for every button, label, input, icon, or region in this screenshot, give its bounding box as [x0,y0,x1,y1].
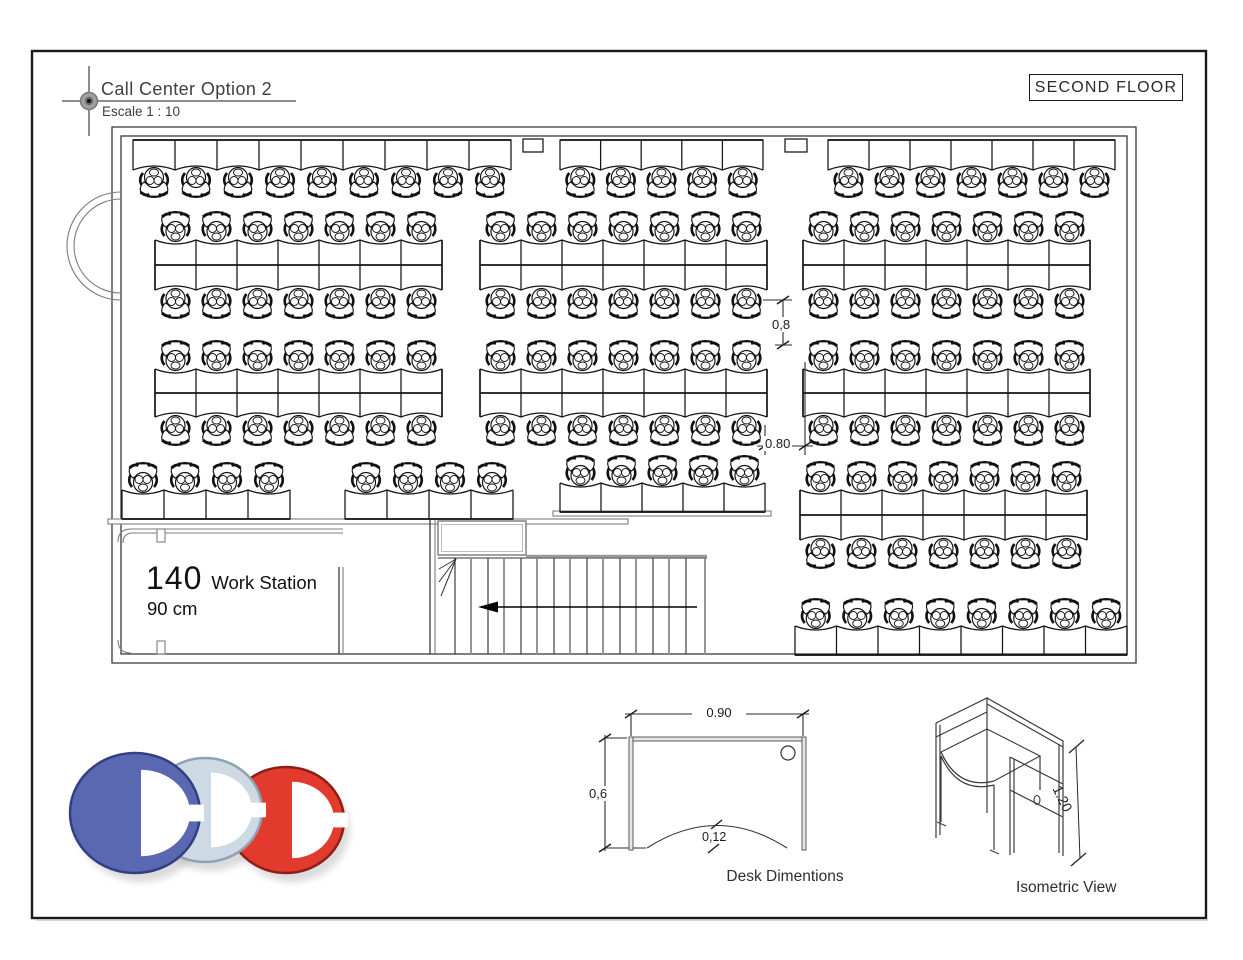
office-chair [807,539,835,569]
office-chair [733,212,761,242]
office-chair [974,416,1002,446]
desk-right-edge [802,737,806,850]
office-chair [1053,462,1081,492]
office-chair [528,212,556,242]
office-chair [203,341,231,371]
office-chair [731,456,759,486]
desk-group-row2-middle [480,212,767,319]
office-chair [1056,416,1084,446]
office-chair [892,341,920,371]
office-chair [1015,416,1043,446]
office-chair [651,416,679,446]
office-chair [733,341,761,371]
column [523,139,543,152]
desk-notch-dimension: 0,12 [700,830,728,844]
office-chair [971,462,999,492]
office-chair [851,416,879,446]
office-chair [690,456,718,486]
office-chair [394,463,422,493]
desk-group-row2-right [803,212,1090,319]
cdc-logo [70,753,350,882]
office-chair [1053,539,1081,569]
office-chair [567,168,595,198]
office-chair [930,539,958,569]
office-chair [889,539,917,569]
office-chair [974,341,1002,371]
office-chair [651,289,679,319]
desk-group-bottom-right-island [800,462,1087,569]
office-chair [408,289,436,319]
office-chair [851,289,879,319]
office-chair [802,599,830,629]
office-chair [807,462,835,492]
office-chair [692,341,720,371]
desk-group-row3-middle [480,341,767,446]
office-chair [729,168,757,198]
office-chair [487,341,515,371]
office-chair [933,289,961,319]
office-chair [408,416,436,446]
titleblock-crosshair-icon [62,66,296,136]
desk-left-edge [629,737,633,850]
desk-group-row3-left [155,341,442,446]
drawing-scale: Escale 1 : 10 [102,104,180,119]
dimension-aisle-vertical: 0,8 [770,317,792,332]
office-chair [367,341,395,371]
office-chair [171,463,199,493]
desk-group-row4-middle [345,463,513,520]
office-chair [487,289,515,319]
iso-caption: Isometric View [1016,879,1117,897]
office-chair [1012,462,1040,492]
office-chair [244,416,272,446]
office-chair [182,168,210,198]
office-chair [810,289,838,319]
office-chair [285,212,313,242]
office-chair [651,341,679,371]
office-chair [162,212,190,242]
office-chair [350,168,378,198]
office-chair [835,168,863,198]
office-chair [692,416,720,446]
drawing-title: Call Center Option 2 [101,79,272,100]
wall-stub [157,529,165,542]
stair-landing [438,521,526,555]
office-chair [224,168,252,198]
office-chair [958,168,986,198]
office-chair [885,599,913,629]
office-chair [203,212,231,242]
office-chair [1040,168,1068,198]
desk-back-edge [629,737,806,741]
office-chair [266,168,294,198]
office-chair [569,416,597,446]
office-chair [326,341,354,371]
office-chair [892,416,920,446]
office-chair [1081,168,1109,198]
office-chair [326,289,354,319]
floor-label: SECOND FLOOR [1029,74,1183,101]
office-chair [487,416,515,446]
office-chair [408,341,436,371]
office-chair [392,168,420,198]
office-chair [1056,212,1084,242]
office-chair [213,463,241,493]
office-chair [367,416,395,446]
grommet-hole [781,746,795,760]
desk-group-top-wall-left [133,140,511,198]
office-chair [649,456,677,486]
office-chair [1015,212,1043,242]
office-chair [528,341,556,371]
wall-stub [157,641,165,654]
desk-diagram-caption: Desk Dimentions [690,868,880,886]
desk-group-top-wall-middle [560,140,763,198]
office-chair [933,416,961,446]
column [785,139,807,152]
dimension-aisle-horizontal: 0.80 [763,436,792,451]
workstation-count: 140 [146,560,202,597]
office-chair [528,289,556,319]
office-chair [285,289,313,319]
office-chair [1012,539,1040,569]
office-chair [933,212,961,242]
office-chair [974,212,1002,242]
office-chair [610,289,638,319]
desk-group-row2-left [155,212,442,319]
office-chair [1056,341,1084,371]
office-chair [892,289,920,319]
office-chair [487,212,515,242]
office-chair [244,289,272,319]
stairs [430,520,707,654]
office-chair [848,462,876,492]
office-chair [688,168,716,198]
office-chair [1056,289,1084,319]
desk-depth-dimension: 0,6 [587,786,609,801]
office-chair [436,463,464,493]
office-chair [162,289,190,319]
office-chair [810,416,838,446]
office-chair [851,212,879,242]
office-chair [692,289,720,319]
office-chair [610,212,638,242]
office-chair [367,289,395,319]
office-chair [917,168,945,198]
stair-winders [439,559,456,596]
office-chair [733,416,761,446]
office-chair [326,416,354,446]
office-chair [528,416,556,446]
office-chair [876,168,904,198]
office-chair [848,539,876,569]
office-chair [889,462,917,492]
office-chair [478,463,506,493]
office-chair [408,212,436,242]
office-chair [843,599,871,629]
office-chair [285,341,313,371]
office-chair [610,416,638,446]
workstation-summary: 140 Work Station [146,560,317,597]
workstation-label: Work Station [211,572,317,594]
desk-group-top-wall-right [828,140,1115,198]
desk-group-row3-right [803,341,1090,446]
office-chair [1015,341,1043,371]
office-chair [244,341,272,371]
office-chair [933,341,961,371]
office-chair [569,341,597,371]
office-chair [892,212,920,242]
office-chair [476,168,504,198]
office-chair [608,456,636,486]
office-chair [974,289,1002,319]
office-chair [610,341,638,371]
desk-group-row4-right [560,456,765,513]
office-chair [810,341,838,371]
office-chair [971,539,999,569]
office-chair [162,416,190,446]
office-chair [162,341,190,371]
office-chair [1015,289,1043,319]
desk-width-dimension: 0.90 [692,705,746,720]
office-chair [434,168,462,198]
office-chair [692,212,720,242]
office-chair [567,456,595,486]
office-chair [285,416,313,446]
desk-group-bottom-wall [795,599,1127,656]
office-chair [651,212,679,242]
office-chair [569,212,597,242]
office-chair [129,463,157,493]
office-chair [367,212,395,242]
office-chair [607,168,635,198]
office-chair [1009,599,1037,629]
office-chair [999,168,1027,198]
office-chair [352,463,380,493]
module-width-label: 90 cm [147,598,197,620]
office-chair [968,599,996,629]
office-chair [140,168,168,198]
office-chair [733,289,761,319]
office-chair [244,212,272,242]
office-chair [308,168,336,198]
office-chair [810,212,838,242]
office-chair [1051,599,1079,629]
office-chair [255,463,283,493]
office-chair [648,168,676,198]
drawing-canvas [0,0,1243,960]
office-chair [926,599,954,629]
curved-wall-bay [67,192,121,300]
office-chair [326,212,354,242]
office-chair [1092,599,1120,629]
office-chair [203,289,231,319]
office-chair [930,462,958,492]
office-chair [851,341,879,371]
office-chair [203,416,231,446]
office-chair [569,289,597,319]
desk-group-row4-left [122,463,290,520]
